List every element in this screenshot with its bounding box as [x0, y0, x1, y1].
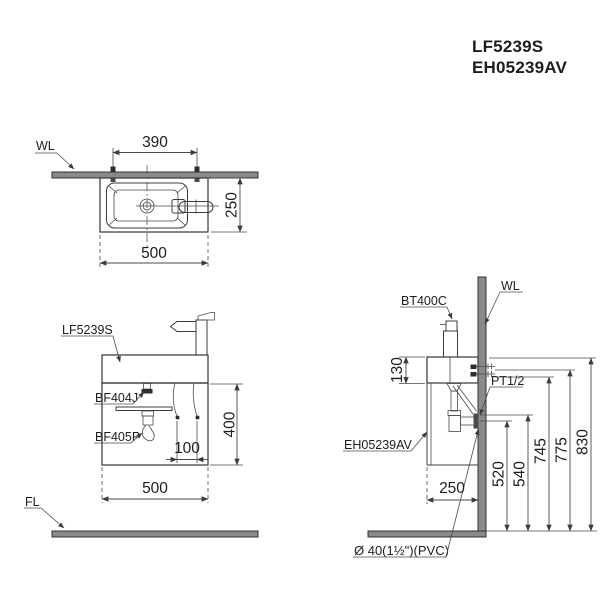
dim-500-front: 500	[102, 467, 208, 503]
basin-model-label: LF5239S	[62, 323, 113, 337]
faucet-front-outline	[171, 313, 215, 356]
side-view: WL BT400C EH05239AV	[343, 277, 597, 558]
floor-section-bar	[52, 531, 258, 537]
installation-drawing-sheet: LF5239S EH05239AV WL	[0, 0, 600, 600]
dim-745: 745	[495, 377, 554, 531]
drain-pipe-label: Ø 40(1½")(PVC)	[354, 543, 449, 558]
dim-400-label: 400	[221, 411, 238, 437]
dim-540-label: 540	[511, 461, 528, 487]
wall-section-bar	[52, 172, 258, 178]
supply-hoses-front	[173, 383, 199, 420]
dim-500-front-label: 500	[142, 480, 168, 497]
dim-520-label: 520	[490, 461, 507, 487]
dim-775-label: 775	[553, 437, 570, 463]
supply-label: PT1/2	[491, 374, 524, 388]
wall-callout: WL	[35, 139, 74, 169]
faucet-callout: BT400C	[400, 294, 452, 319]
wall-callout-side: WL	[485, 279, 523, 324]
floor-label: FL	[25, 495, 40, 509]
floor-section-bar-side	[368, 531, 486, 537]
drain-trap-side	[447, 384, 479, 432]
faucet-side-outline	[440, 321, 458, 383]
dim-390-label: 390	[142, 134, 168, 151]
basin-side-outline	[427, 357, 478, 383]
drain-fitting-callout: BF404J	[94, 391, 144, 405]
model-code-basin: LF5239S	[472, 37, 543, 56]
dim-745-label: 745	[532, 438, 549, 464]
dim-250-top-label: 250	[223, 192, 240, 218]
faucet-label: BT400C	[401, 294, 447, 308]
trap-label: BF405P	[95, 430, 140, 444]
dim-500-top-label: 500	[141, 245, 167, 262]
dim-830-label: 830	[574, 429, 591, 455]
drain-fitting-label: BF404J	[95, 391, 138, 405]
basin-callout: LF5239S	[61, 323, 120, 362]
top-view: WL	[35, 134, 258, 268]
floor-callout: FL	[24, 495, 64, 528]
model-code-cabinet: EH05239AV	[472, 58, 568, 77]
dim-250-side: 250	[427, 467, 478, 504]
cabinet-label: EH05239AV	[344, 438, 413, 452]
trap-callout: BF405P	[94, 430, 142, 444]
dim-390: 390	[113, 134, 197, 167]
dim-100: 100	[166, 421, 208, 463]
dim-130: 130	[389, 357, 425, 384]
front-view: LF5239S BF404J BF405P	[24, 313, 258, 538]
dim-130-label: 130	[389, 357, 406, 383]
dim-500-top: 500	[100, 235, 208, 268]
dim-250-side-label: 250	[439, 480, 465, 497]
supply-callout: PT1/2	[480, 374, 524, 415]
dim-250-top: 250	[211, 178, 247, 232]
dim-400: 400	[210, 384, 243, 465]
dim-100-label: 100	[174, 440, 200, 457]
basin-front-outline	[102, 355, 208, 383]
wall-section-bar-side	[478, 277, 486, 537]
drawing-canvas: LF5239S EH05239AV WL	[0, 0, 600, 600]
cabinet-callout: EH05239AV	[343, 432, 427, 452]
wall-label: WL	[36, 139, 55, 153]
cabinet-side-outline	[427, 383, 478, 465]
wall-label-side: WL	[501, 279, 520, 293]
title-block: LF5239S EH05239AV	[472, 37, 568, 77]
